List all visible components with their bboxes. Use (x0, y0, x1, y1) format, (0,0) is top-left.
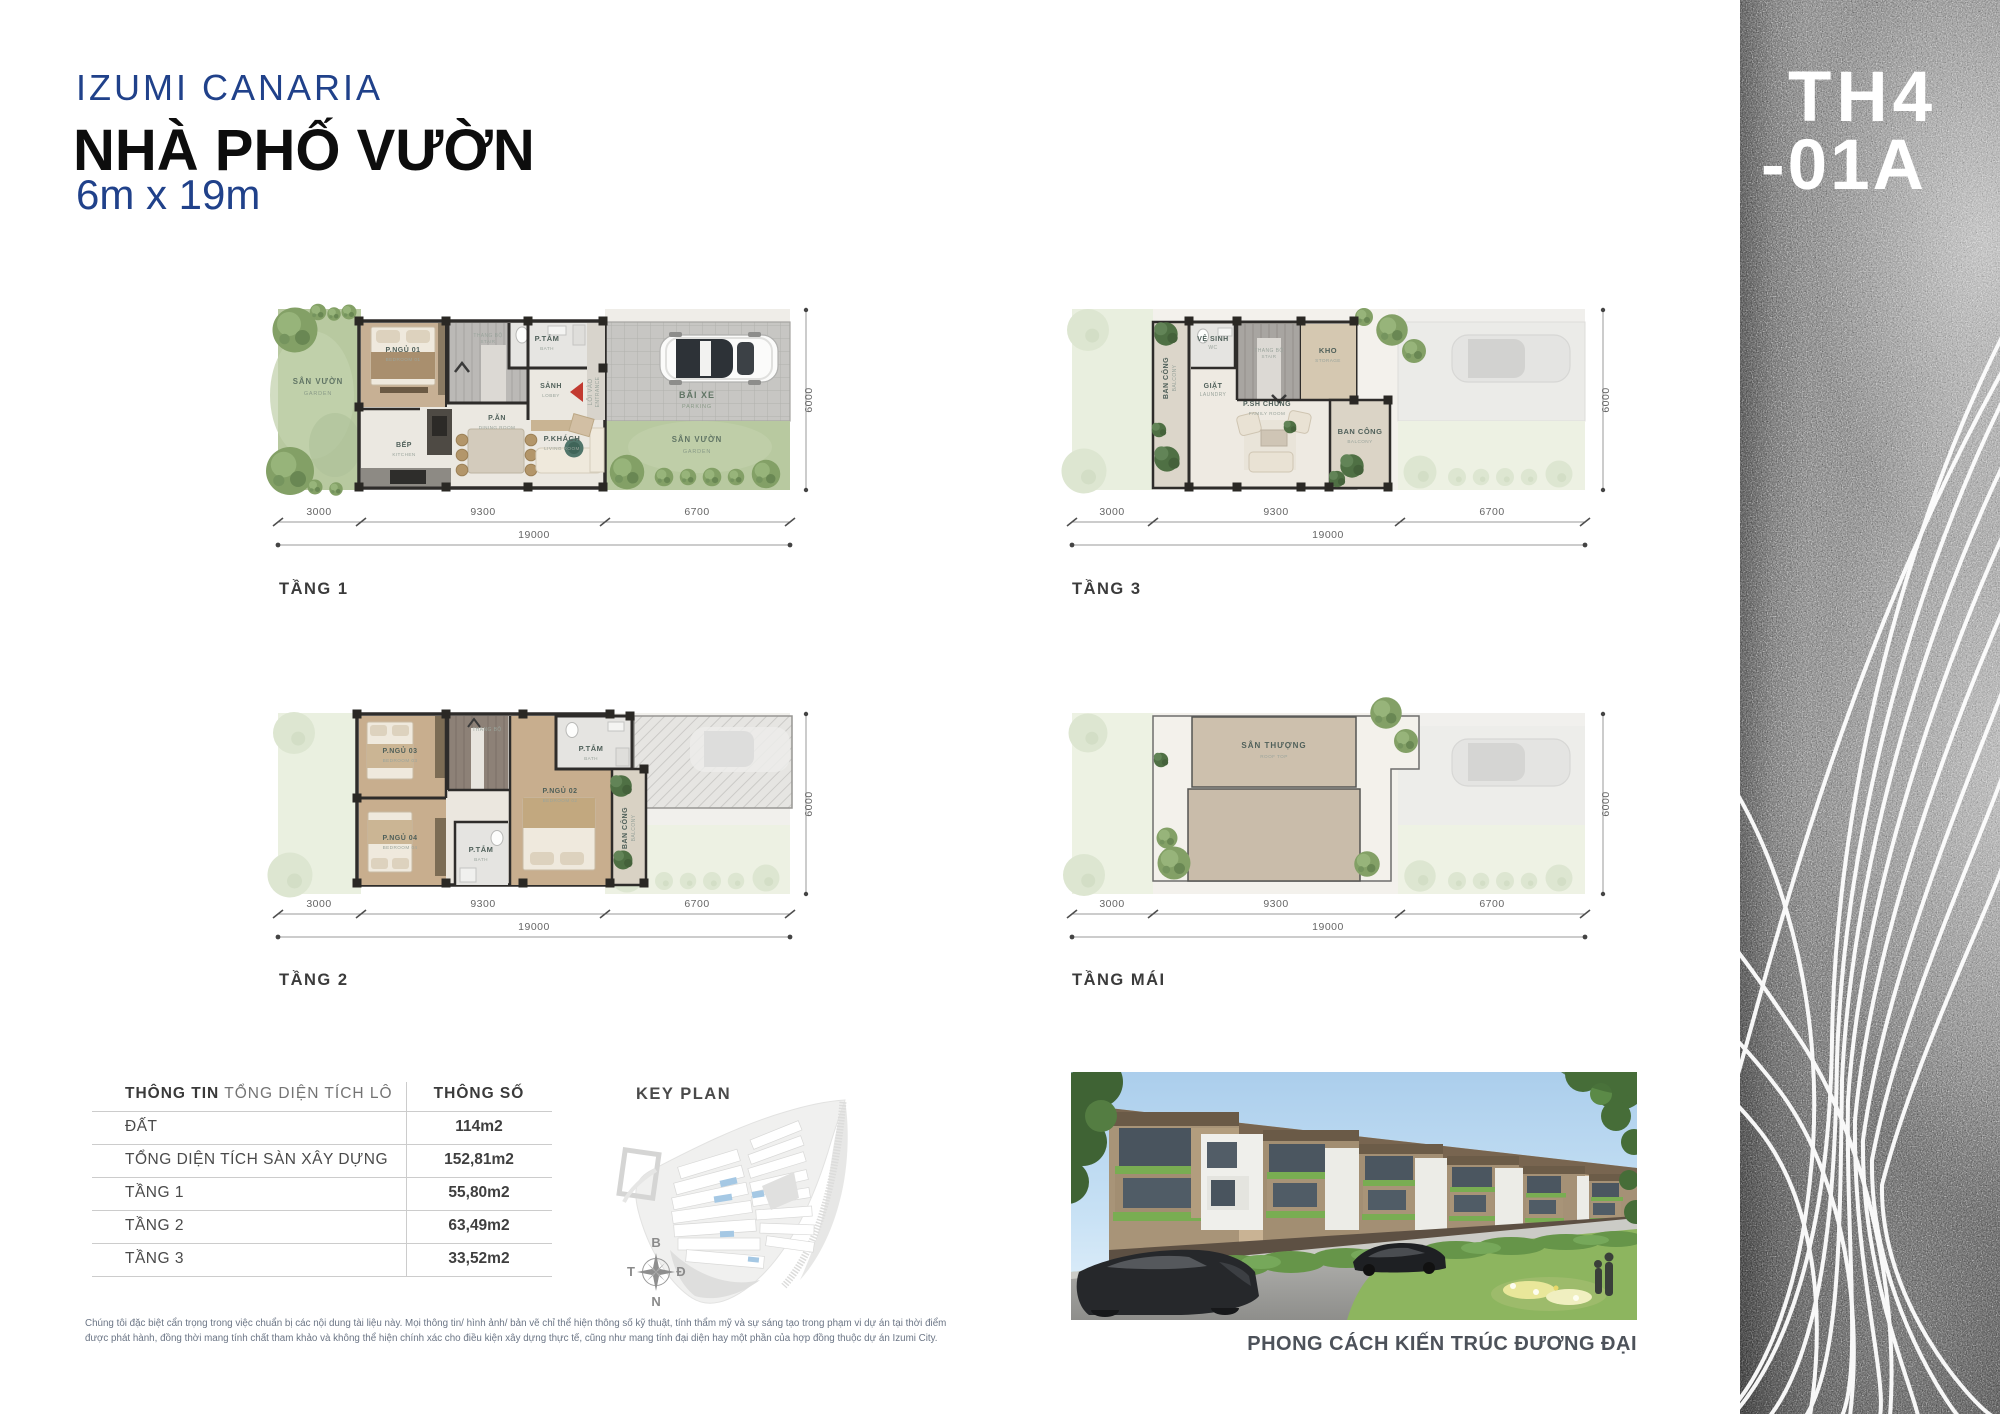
svg-text:9300: 9300 (1263, 506, 1288, 518)
svg-text:BEDROOM 03: BEDROOM 03 (383, 758, 418, 763)
svg-text:BALCONY: BALCONY (1172, 364, 1178, 391)
svg-text:P.NGỦ 03: P.NGỦ 03 (383, 746, 418, 755)
svg-text:19000: 19000 (518, 921, 550, 933)
svg-text:6000: 6000 (1600, 791, 1612, 816)
svg-text:6700: 6700 (1479, 506, 1504, 518)
svg-text:KITCHEN: KITCHEN (392, 452, 415, 457)
svg-text:3000: 3000 (306, 898, 331, 910)
svg-text:9300: 9300 (470, 506, 495, 518)
svg-text:19000: 19000 (1312, 529, 1344, 541)
svg-text:BAN CÔNG: BAN CÔNG (620, 807, 629, 849)
svg-text:BATH: BATH (540, 346, 554, 351)
svg-text:GARDEN: GARDEN (683, 449, 711, 455)
svg-text:6000: 6000 (1600, 387, 1612, 412)
svg-text:Đ: Đ (676, 1264, 685, 1279)
svg-text:ROOF TOP: ROOF TOP (1260, 754, 1288, 759)
svg-text:GIẶT: GIẶT (1204, 381, 1223, 390)
svg-text:FAMILY ROOM: FAMILY ROOM (1249, 411, 1286, 416)
svg-text:VỆ SINH: VỆ SINH (1197, 334, 1229, 343)
svg-text:LAUNDRY: LAUNDRY (1200, 392, 1227, 398)
svg-text:BAN CÔNG: BAN CÔNG (1161, 357, 1170, 399)
svg-text:P.NGỦ 04: P.NGỦ 04 (383, 833, 418, 842)
svg-text:P.TẮM: P.TẮM (469, 845, 494, 854)
svg-text:STAIR: STAIR (1262, 354, 1277, 359)
svg-text:WC: WC (1208, 345, 1217, 351)
svg-text:9300: 9300 (1263, 898, 1288, 910)
svg-text:6700: 6700 (1479, 898, 1504, 910)
svg-text:GARDEN: GARDEN (304, 391, 332, 397)
svg-text:ENTRANCE: ENTRANCE (595, 376, 601, 407)
svg-text:THANG BỘ: THANG BỘ (1254, 347, 1283, 354)
svg-text:B: B (651, 1235, 660, 1250)
svg-text:P.KHÁCH: P.KHÁCH (544, 434, 581, 443)
svg-text:LIVING ROOM: LIVING ROOM (544, 446, 580, 451)
svg-text:3000: 3000 (306, 506, 331, 518)
svg-text:SÂN THƯỢNG: SÂN THƯỢNG (1241, 741, 1306, 750)
svg-text:SẢNH: SẢNH (540, 381, 562, 390)
svg-text:N: N (651, 1294, 660, 1309)
svg-text:BALCONY: BALCONY (1347, 439, 1373, 444)
svg-text:BATH: BATH (584, 756, 598, 761)
svg-text:BEDROOM 01: BEDROOM 01 (386, 357, 421, 362)
svg-text:3000: 3000 (1099, 898, 1124, 910)
svg-text:KHO: KHO (1319, 346, 1337, 355)
svg-text:19000: 19000 (1312, 921, 1344, 933)
svg-text:P.NGỦ 02: P.NGỦ 02 (543, 786, 578, 795)
svg-text:LOBBY: LOBBY (542, 393, 560, 398)
svg-text:9300: 9300 (470, 898, 495, 910)
svg-text:BALCONY: BALCONY (631, 814, 637, 841)
svg-text:BEDROOM 02: BEDROOM 02 (543, 798, 578, 803)
svg-text:6000: 6000 (803, 791, 815, 816)
svg-text:THANG BỘ: THANG BỘ (472, 726, 501, 733)
svg-text:DINING ROOM: DINING ROOM (479, 425, 516, 430)
svg-text:PARKING: PARKING (682, 404, 712, 410)
svg-text:STAIR: STAIR (481, 339, 496, 344)
svg-text:BAN CÔNG: BAN CÔNG (1338, 427, 1383, 436)
svg-text:6000: 6000 (803, 387, 815, 412)
svg-text:SÂN VƯỜN: SÂN VƯỜN (293, 377, 344, 386)
svg-text:SÂN VƯỜN: SÂN VƯỜN (672, 435, 723, 444)
svg-text:P.TẮM: P.TẮM (579, 744, 604, 753)
svg-text:LỐI VÀO: LỐI VÀO (587, 379, 594, 406)
svg-text:6700: 6700 (684, 506, 709, 518)
svg-text:3000: 3000 (1099, 506, 1124, 518)
svg-text:THANG BỘ: THANG BỘ (473, 332, 502, 339)
svg-text:P.NGỦ 01: P.NGỦ 01 (386, 345, 421, 354)
svg-text:T: T (627, 1264, 635, 1279)
svg-text:BEDROOM 04: BEDROOM 04 (383, 845, 418, 850)
svg-text:STORAGE: STORAGE (1315, 358, 1341, 363)
svg-text:P.TẮM: P.TẮM (535, 334, 560, 343)
svg-text:P.ĂN: P.ĂN (488, 413, 506, 422)
svg-text:BATH: BATH (474, 857, 488, 862)
svg-text:P.SH CHUNG: P.SH CHUNG (1243, 401, 1291, 408)
svg-text:19000: 19000 (518, 529, 550, 541)
svg-text:BÃI XE: BÃI XE (679, 390, 715, 400)
svg-text:6700: 6700 (684, 898, 709, 910)
